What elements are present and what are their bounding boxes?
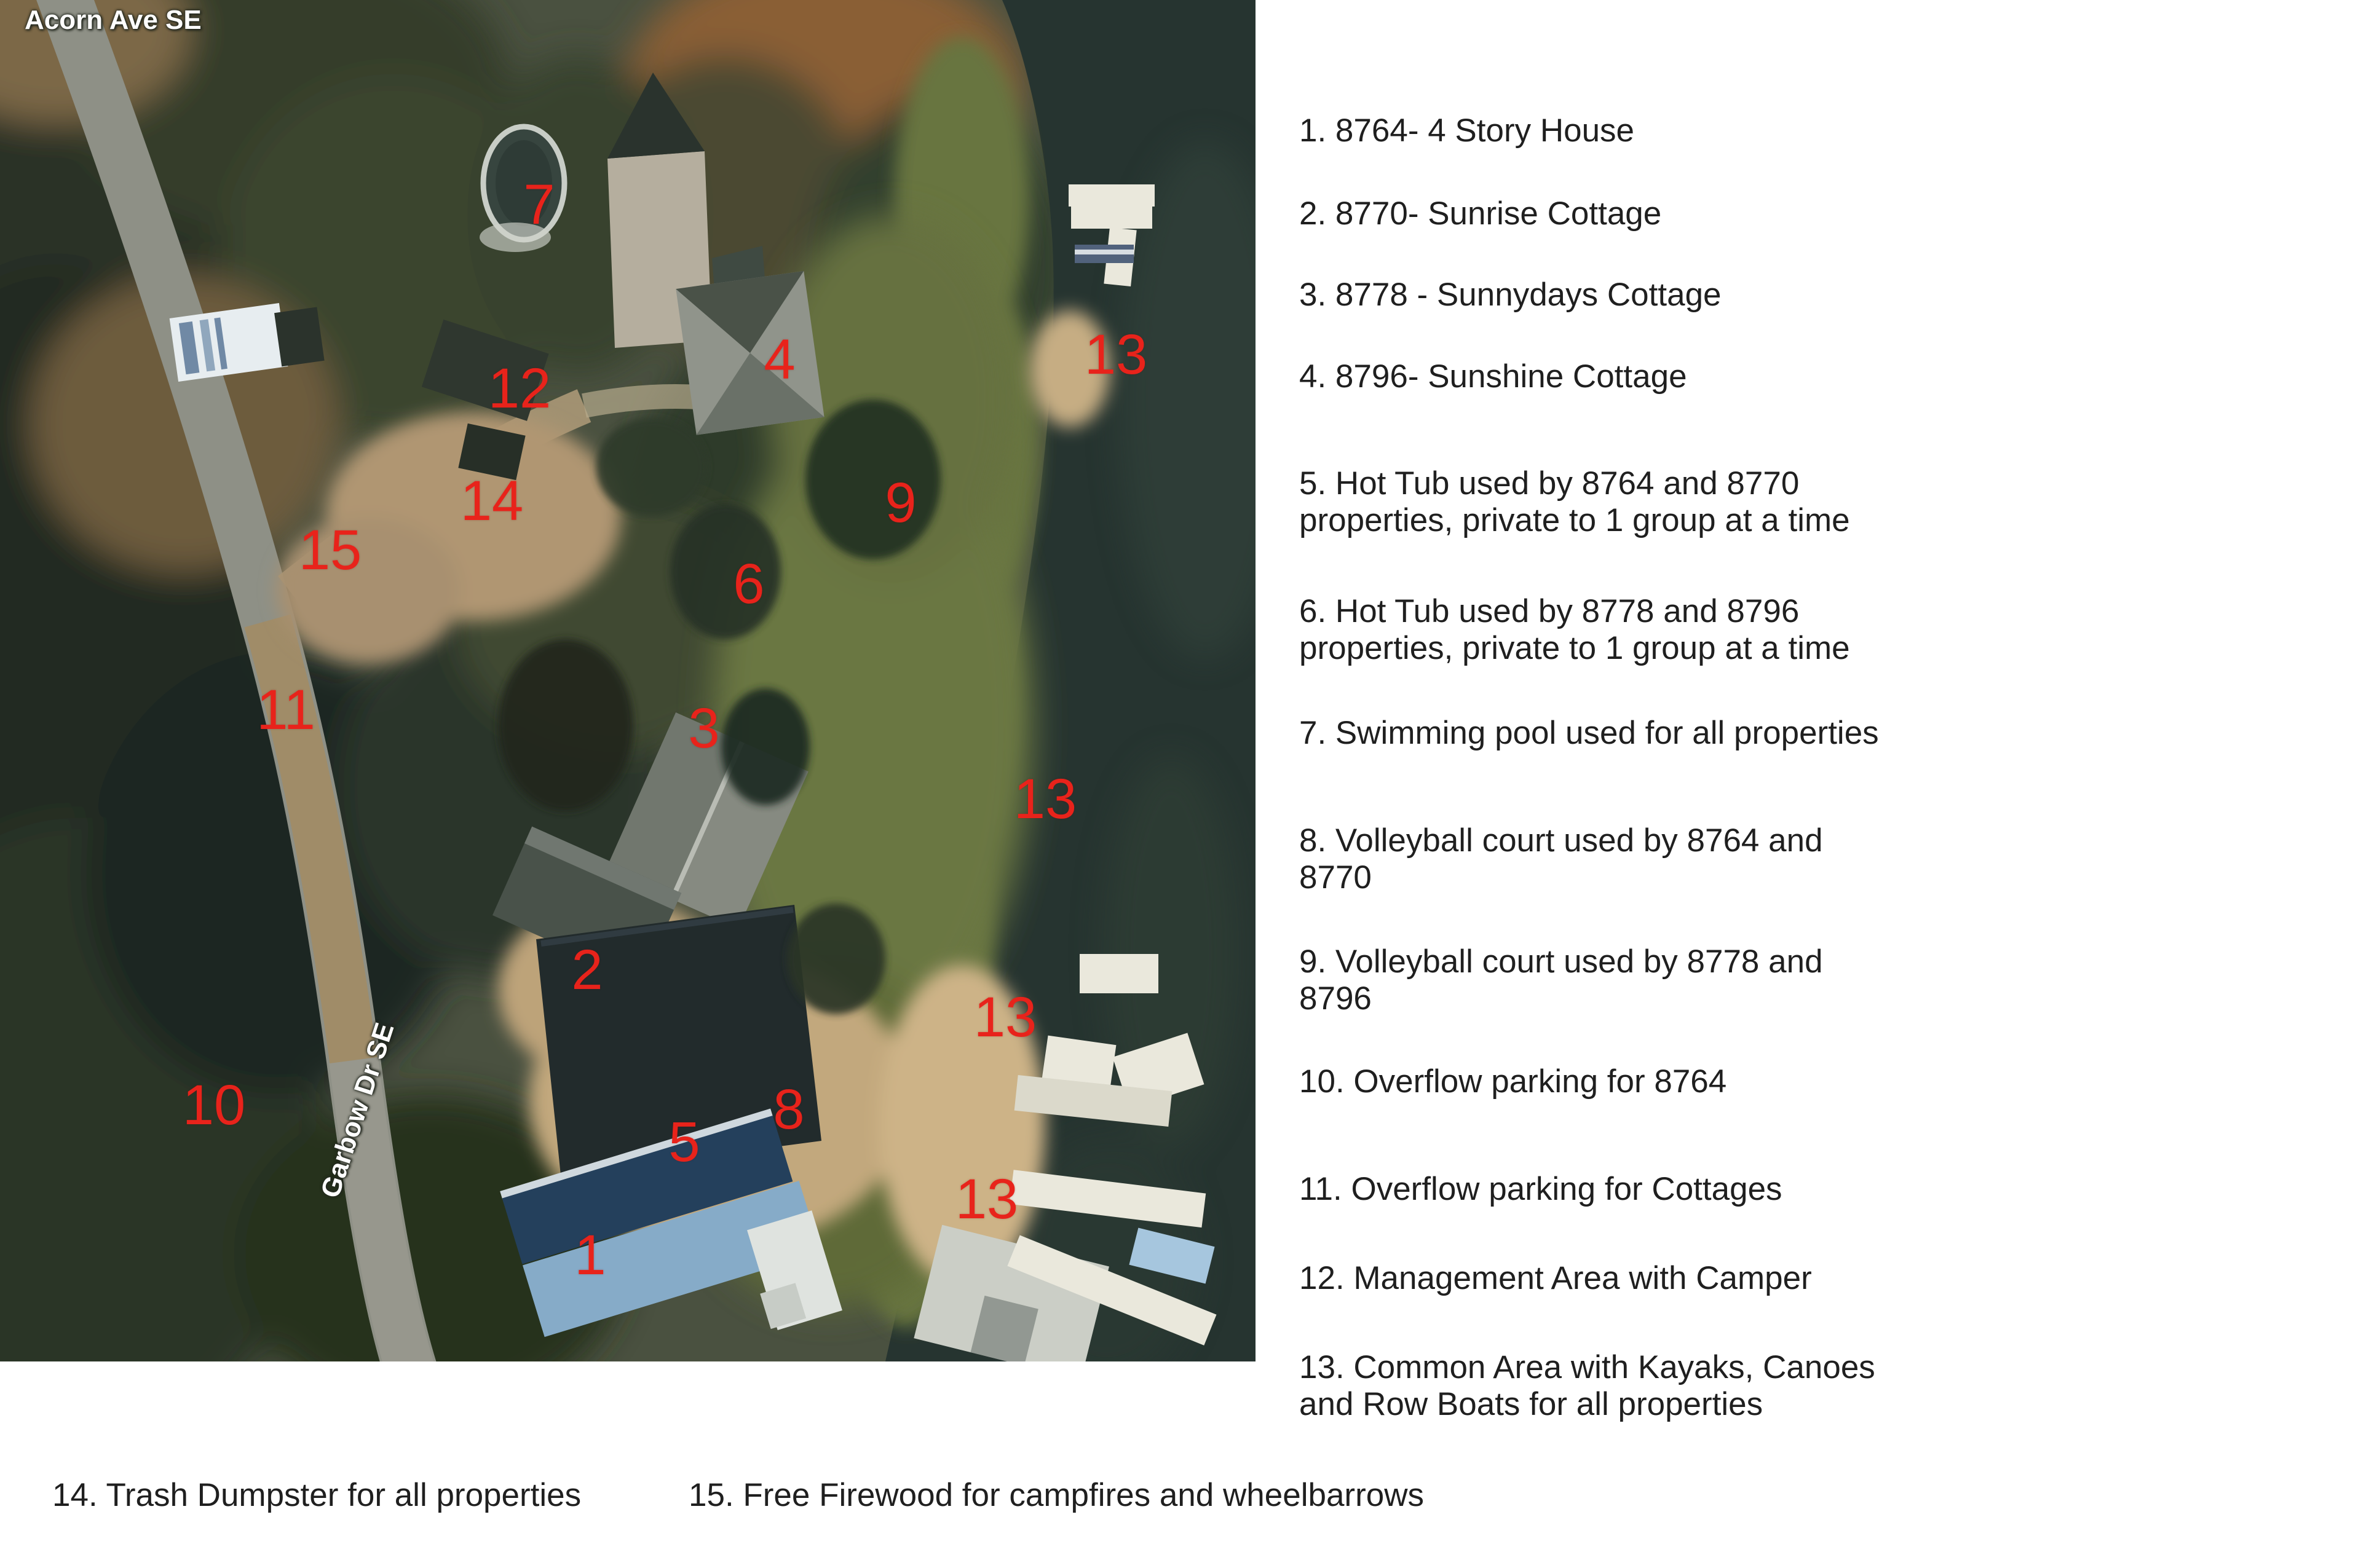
- legend-item-8: 8. Volleyball court used by 8764 and 877…: [1299, 822, 2006, 896]
- footer-note-15: 15. Free Firewood for campfires and whee…: [689, 1477, 1424, 1514]
- map-marker-15: 15: [299, 522, 362, 578]
- map-marker-13: 13: [974, 989, 1037, 1046]
- map-marker-2: 2: [571, 942, 603, 998]
- map-marker-8: 8: [773, 1081, 804, 1138]
- map-marker-11: 11: [256, 682, 315, 738]
- legend-item-10: 10. Overflow parking for 8764: [1299, 1063, 2006, 1100]
- street-label-acorn-ave: Acorn Ave SE: [25, 5, 202, 36]
- map-marker-9: 9: [885, 475, 916, 531]
- legend-item-2: 2. 8770- Sunrise Cottage: [1299, 195, 2006, 232]
- map-marker-10: 10: [183, 1077, 245, 1133]
- satellite-map-art: [0, 0, 1256, 1361]
- legend-item-9: 9. Volleyball court used by 8778 and 879…: [1299, 944, 2006, 1017]
- map-marker-3: 3: [688, 700, 719, 757]
- legend-item-11: 11. Overflow parking for Cottages: [1299, 1171, 2006, 1208]
- page-root: { "map": { "street_labels": { "acorn": "…: [0, 0, 2361, 1568]
- map-marker-14: 14: [461, 473, 523, 529]
- map-marker-13: 13: [955, 1171, 1018, 1227]
- legend-item-6: 6. Hot Tub used by 8778 and 8796 propert…: [1299, 593, 2006, 667]
- legend-item-13: 13. Common Area with Kayaks, Canoes and …: [1299, 1349, 2006, 1423]
- map-marker-6: 6: [733, 556, 764, 612]
- satellite-map: Acorn Ave SE Garbow Dr SE 71241314915611…: [0, 0, 1256, 1361]
- legend-item-12: 12. Management Area with Camper: [1299, 1260, 2006, 1297]
- legend-item-7: 7. Swimming pool used for all properties: [1299, 715, 2006, 752]
- map-marker-13: 13: [1085, 326, 1147, 383]
- legend-item-1: 1. 8764- 4 Story House: [1299, 112, 2006, 149]
- map-marker-5: 5: [668, 1114, 700, 1170]
- map-marker-12: 12: [488, 360, 551, 417]
- map-marker-1: 1: [574, 1227, 606, 1283]
- legend-item-4: 4. 8796- Sunshine Cottage: [1299, 358, 2006, 395]
- footer-note-14: 14. Trash Dumpster for all properties: [52, 1477, 581, 1514]
- map-marker-13: 13: [1014, 771, 1077, 827]
- legend-item-3: 3. 8778 - Sunnydays Cottage: [1299, 277, 2006, 313]
- map-marker-4: 4: [764, 331, 795, 388]
- legend-list: 1. 8764- 4 Story House2. 8770- Sunrise C…: [1299, 0, 2006, 1568]
- map-marker-7: 7: [523, 176, 555, 233]
- legend-item-5: 5. Hot Tub used by 8764 and 8770 propert…: [1299, 465, 2006, 539]
